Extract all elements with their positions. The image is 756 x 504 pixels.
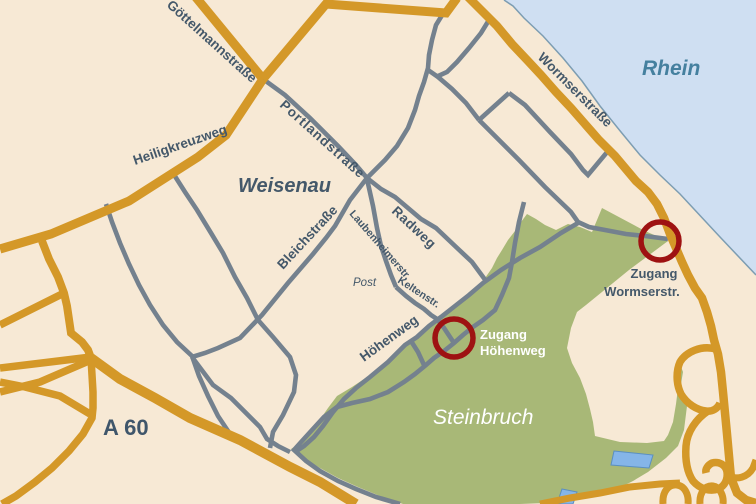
svg-text:Zugang: Zugang	[480, 327, 527, 342]
svg-text:Höhenweg: Höhenweg	[480, 343, 546, 358]
svg-text:Post: Post	[353, 277, 377, 289]
svg-text:A 60: A 60	[103, 415, 149, 440]
svg-text:Wormserstr.: Wormserstr.	[604, 284, 680, 299]
svg-text:Steinbruch: Steinbruch	[433, 406, 533, 429]
svg-text:Zugang: Zugang	[631, 266, 678, 281]
svg-text:Weisenau: Weisenau	[238, 175, 331, 197]
svg-text:Rhein: Rhein	[642, 57, 700, 80]
